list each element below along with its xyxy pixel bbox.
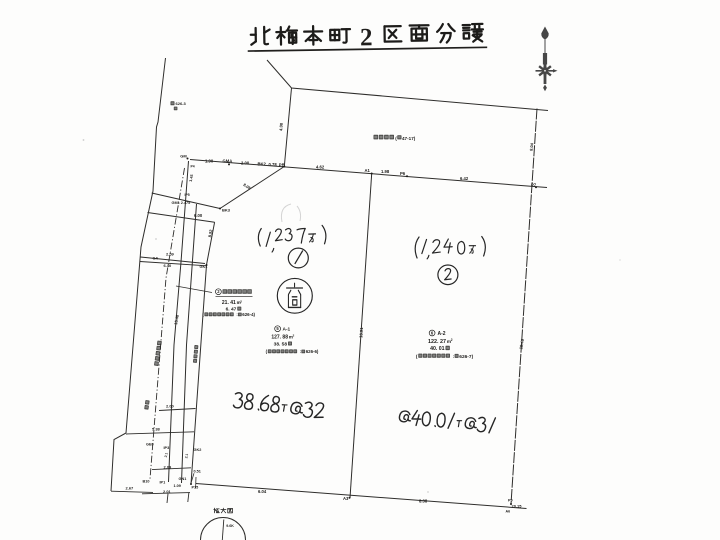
svg-text:5: 5 bbox=[276, 326, 279, 331]
svg-text:BK3: BK3 bbox=[222, 208, 231, 213]
svg-text::: : bbox=[453, 354, 455, 359]
svg-text:GM1 2.475: GM1 2.475 bbox=[172, 201, 191, 205]
svg-text:626-6): 626-6) bbox=[306, 349, 319, 354]
svg-text:2.1: 2.1 bbox=[184, 453, 189, 458]
svg-text:2.1: 2.1 bbox=[164, 452, 169, 457]
svg-text:P9: P9 bbox=[508, 499, 513, 503]
svg-text:P6: P6 bbox=[400, 171, 406, 176]
svg-text:A-1: A-1 bbox=[283, 327, 291, 333]
svg-text::: : bbox=[300, 349, 301, 354]
svg-text:6.00: 6.00 bbox=[194, 213, 203, 218]
svg-text:GM: GM bbox=[180, 153, 187, 158]
svg-text:6.04: 6.04 bbox=[258, 489, 267, 494]
svg-text:4.62: 4.62 bbox=[316, 165, 325, 170]
svg-text:8.05: 8.05 bbox=[242, 182, 252, 191]
svg-text:GMA: GMA bbox=[223, 159, 233, 164]
svg-text:BK2: BK2 bbox=[258, 161, 267, 166]
svg-text:IP5: IP5 bbox=[185, 193, 190, 197]
svg-text:2: 2 bbox=[240, 299, 242, 303]
svg-text:A1: A1 bbox=[365, 168, 371, 173]
svg-text:(: ( bbox=[202, 312, 204, 317]
svg-text:(: ( bbox=[416, 354, 418, 360]
svg-text:A6: A6 bbox=[506, 510, 511, 514]
svg-text:2.09: 2.09 bbox=[164, 465, 173, 470]
svg-text:2.59: 2.59 bbox=[166, 252, 175, 257]
svg-text:2.00: 2.00 bbox=[166, 403, 175, 408]
svg-text:122. 27: 122. 27 bbox=[428, 339, 446, 345]
svg-text:38. 58: 38. 58 bbox=[274, 342, 288, 348]
svg-text:IP1: IP1 bbox=[160, 481, 166, 485]
svg-text:6. 47: 6. 47 bbox=[226, 307, 237, 313]
svg-text:0.78: 0.78 bbox=[269, 162, 278, 167]
svg-text:2.67: 2.67 bbox=[126, 486, 135, 491]
svg-text:2.00: 2.00 bbox=[241, 160, 250, 165]
svg-text:2.01: 2.01 bbox=[163, 489, 172, 494]
svg-text:P15: P15 bbox=[192, 485, 199, 489]
svg-text:47-17): 47-17) bbox=[402, 136, 416, 141]
svg-text:(: ( bbox=[266, 349, 268, 354]
svg-text:2: 2 bbox=[217, 289, 220, 294]
svg-text::: : bbox=[236, 312, 237, 317]
svg-text:40. 01: 40. 01 bbox=[430, 346, 445, 352]
svg-text:GA: GA bbox=[153, 256, 159, 260]
svg-text:1.45: 1.45 bbox=[189, 174, 194, 182]
svg-text:A-2: A-2 bbox=[438, 331, 446, 337]
svg-text:(: ( bbox=[395, 136, 397, 141]
svg-text:P4: P4 bbox=[191, 165, 195, 169]
svg-text:GK1: GK1 bbox=[200, 265, 208, 269]
svg-text:626-4): 626-4) bbox=[242, 312, 255, 317]
svg-text:2: 2 bbox=[360, 24, 373, 51]
svg-text:P7: P7 bbox=[531, 182, 537, 187]
svg-text:626-7): 626-7) bbox=[459, 354, 473, 360]
svg-text:5.38: 5.38 bbox=[152, 427, 161, 432]
svg-text:15.48: 15.48 bbox=[173, 314, 180, 325]
svg-text:1.98: 1.98 bbox=[381, 169, 390, 174]
svg-text:IP3: IP3 bbox=[164, 446, 170, 450]
svg-text:2: 2 bbox=[451, 338, 453, 342]
svg-text:8.04: 8.04 bbox=[529, 142, 535, 151]
svg-text:2: 2 bbox=[293, 334, 295, 338]
svg-text:8.92: 8.92 bbox=[207, 228, 213, 237]
svg-text:6.42: 6.42 bbox=[460, 176, 469, 181]
svg-text:PB: PB bbox=[279, 163, 285, 168]
svg-text:GN1: GN1 bbox=[179, 477, 187, 481]
svg-text:4.00: 4.00 bbox=[278, 122, 284, 131]
svg-text:127. 88: 127. 88 bbox=[271, 334, 288, 340]
svg-text:1.09: 1.09 bbox=[174, 484, 181, 488]
svg-text:0.51: 0.51 bbox=[194, 470, 201, 474]
svg-text:18.49: 18.49 bbox=[518, 338, 525, 350]
svg-text:21. 41: 21. 41 bbox=[222, 300, 236, 306]
svg-text:20.15: 20.15 bbox=[512, 503, 523, 508]
svg-text:1.90: 1.90 bbox=[205, 159, 214, 164]
svg-text:B10: B10 bbox=[143, 479, 150, 483]
svg-text:8.38: 8.38 bbox=[419, 499, 428, 504]
svg-text:16.91: 16.91 bbox=[358, 327, 364, 338]
svg-text:GE0: GE0 bbox=[146, 442, 154, 446]
svg-text:GK2: GK2 bbox=[194, 448, 202, 452]
svg-text:9.6K: 9.6K bbox=[226, 524, 234, 528]
svg-text:6: 6 bbox=[431, 331, 434, 336]
svg-text:A3: A3 bbox=[343, 496, 349, 501]
svg-text:626-3: 626-3 bbox=[176, 101, 187, 106]
svg-text:6.40: 6.40 bbox=[164, 263, 173, 268]
